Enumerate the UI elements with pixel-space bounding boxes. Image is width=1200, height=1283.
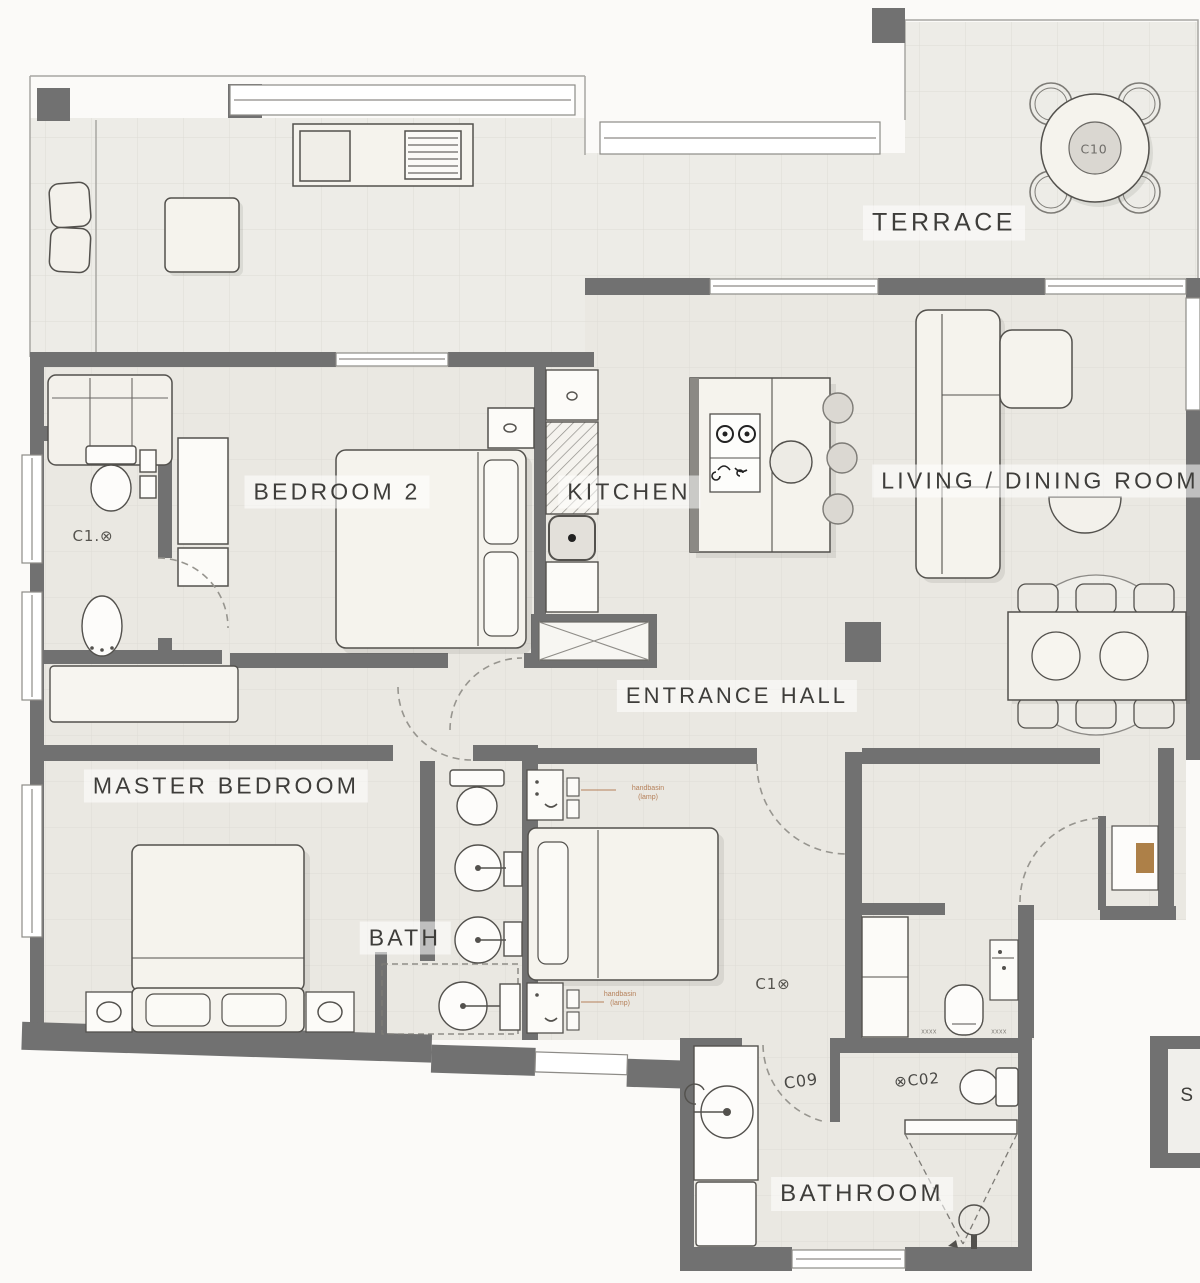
hob-burner-center — [723, 432, 728, 437]
annotation-line: (lamp) — [610, 1000, 630, 1007]
sofa-vertical — [916, 310, 1000, 578]
wall — [30, 745, 393, 761]
bed-pillow — [222, 994, 286, 1026]
unit-door — [567, 778, 579, 796]
shelf — [140, 476, 156, 498]
room-label-entrance-hall: ENTRANCE HALL — [617, 680, 857, 712]
shelf-dot — [998, 950, 1002, 954]
dining-chair — [1134, 584, 1174, 614]
wardrobe — [178, 438, 228, 544]
wall — [1186, 278, 1200, 295]
wall — [30, 650, 222, 664]
wall — [862, 748, 1100, 764]
toilet-bowl — [945, 985, 983, 1035]
structural-column — [845, 622, 881, 662]
unit-dot — [535, 780, 539, 784]
unit-door — [567, 800, 579, 818]
room-label-stair: S — [1180, 1085, 1195, 1107]
room-label-kitchen: KITCHEN — [558, 476, 700, 509]
floor-plan-drawing — [0, 0, 1200, 1283]
toilet-bowl — [960, 1070, 998, 1104]
door-stop — [722, 754, 730, 762]
nightstand — [488, 408, 534, 448]
bed-pillow — [538, 842, 568, 964]
wall — [448, 352, 594, 367]
terrace-ottoman-table — [165, 198, 239, 272]
room-label-living-dining: LIVING / DINING ROOM — [872, 465, 1200, 498]
wall — [44, 352, 336, 367]
window — [535, 1052, 628, 1075]
room-label-bedroom2: BEDROOM 2 — [244, 476, 429, 509]
wall — [1018, 1038, 1032, 1271]
sofa-chaise — [1000, 330, 1072, 408]
marker-wc: C1.⊗ — [73, 527, 114, 545]
entrance-closet — [531, 614, 657, 668]
wall — [230, 653, 448, 668]
unit-door — [567, 1012, 579, 1030]
bar-stool — [823, 393, 853, 423]
sink-drain — [568, 534, 576, 542]
annotation-handbasin-bottom: handbasin (lamp) — [604, 990, 636, 1008]
vanity-cabinet — [696, 1182, 756, 1246]
column — [872, 8, 905, 43]
basin-dot — [110, 646, 114, 650]
kitchen-cabinet — [546, 370, 598, 420]
wall — [845, 752, 862, 1042]
shower-stem — [971, 1235, 977, 1249]
faucet-panel — [504, 922, 522, 956]
shelf — [140, 450, 156, 472]
wall — [878, 278, 1045, 295]
wall — [431, 1045, 536, 1076]
door-jamb — [830, 1038, 840, 1122]
terrace-floor-mid — [585, 153, 905, 295]
wall — [905, 1247, 1032, 1271]
toilet-tank — [86, 446, 136, 464]
door-stop — [736, 754, 744, 762]
marker-bedroom3: C1⊗ — [755, 975, 790, 993]
handbasin-unit — [527, 983, 563, 1033]
toilet-tank — [450, 770, 504, 786]
wall — [1158, 748, 1174, 920]
basin-dot — [100, 648, 104, 652]
dining-place-seat — [1032, 632, 1080, 680]
faucet-panel — [500, 984, 520, 1030]
entrance-door-leaf — [1098, 816, 1106, 910]
wall — [158, 638, 172, 652]
hob-burner-center — [745, 432, 750, 437]
basin-drain — [475, 865, 481, 871]
basin-dot — [90, 646, 94, 650]
toilet-tank — [996, 1068, 1018, 1106]
annotation-line: handbasin — [632, 785, 664, 792]
floor-plan: TERRACE BEDROOM 2 KITCHEN LIVING / DININ… — [0, 0, 1200, 1283]
shower-shelf — [905, 1120, 1017, 1134]
wall — [534, 352, 546, 614]
bbq-board — [300, 131, 350, 181]
dining-chair — [1076, 584, 1116, 614]
room-label-bath: BATH — [360, 922, 451, 955]
wall — [627, 1059, 692, 1089]
window-living-east — [1186, 298, 1200, 410]
annotation-line: (lamp) — [638, 794, 658, 801]
threshold-mark: xxxx — [921, 1029, 936, 1036]
wall — [375, 952, 387, 1040]
unit-dot — [535, 993, 539, 997]
terrace-cushion — [49, 227, 91, 273]
room-label-terrace: TERRACE — [863, 206, 1025, 241]
unit-dot — [535, 792, 539, 796]
annotation-line: handbasin — [604, 991, 636, 998]
dining-chair — [1018, 584, 1058, 614]
wall — [845, 903, 945, 915]
threshold-mark: xxxx — [991, 1029, 1006, 1036]
corridor-dresser — [50, 666, 238, 722]
nightstand — [306, 992, 354, 1032]
toilet-bowl — [91, 465, 131, 511]
wall — [830, 1038, 1032, 1053]
nightstand — [86, 992, 132, 1032]
handbasin-unit — [527, 770, 563, 820]
terrace-cushion — [49, 182, 92, 229]
bed-pillow — [484, 460, 518, 544]
basin-drain — [475, 937, 481, 943]
dining-place-seat — [1100, 632, 1148, 680]
annotation-handbasin-top: handbasin (lamp) — [632, 784, 664, 802]
wall — [1150, 1036, 1168, 1168]
unit-door — [567, 990, 579, 1008]
kitchen-island — [690, 378, 857, 558]
wall — [680, 1247, 792, 1271]
bar-stool — [827, 443, 857, 473]
bed-pillow — [484, 552, 518, 636]
island-edge — [690, 378, 699, 552]
bed-pillow — [146, 994, 210, 1026]
marker-terrace-table: C10 — [1081, 142, 1108, 157]
room-label-master-bedroom: MASTER BEDROOM — [84, 770, 368, 803]
washbasin — [82, 596, 122, 656]
faucet-panel — [504, 852, 522, 886]
basin-drain — [460, 1003, 466, 1009]
room-label-bathroom: BATHROOM — [771, 1177, 953, 1211]
kitchen-cabinet — [546, 562, 598, 612]
wall — [585, 278, 710, 295]
master-bed — [132, 845, 304, 991]
bar-stool — [823, 494, 853, 524]
island-basin — [770, 441, 812, 483]
entry-panel — [1136, 843, 1154, 873]
toilet-bowl — [457, 787, 497, 825]
shelf-dot — [1002, 966, 1006, 970]
column — [37, 88, 70, 121]
wardrobe-shelf — [178, 548, 228, 586]
wall — [1018, 905, 1034, 1038]
